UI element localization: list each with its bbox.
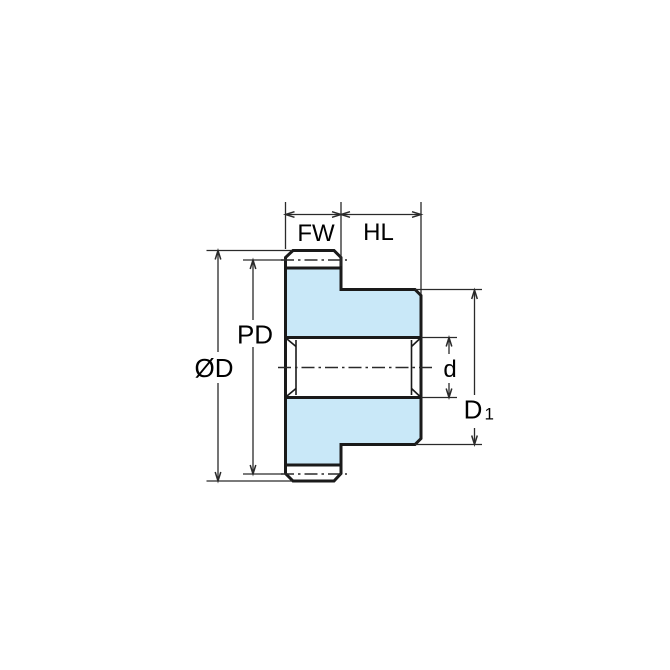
gear-tooth-top — [286, 251, 342, 269]
dimension-pd: PD — [237, 260, 283, 474]
d-label: d — [443, 356, 456, 383]
gear-body-upper — [286, 268, 422, 338]
fw-label: FW — [297, 220, 335, 247]
bore-chamfer-diag-tr — [412, 339, 420, 347]
gear-body-lower — [286, 398, 422, 466]
gear-dimension-diagram: FW HL ØD PD d D — [0, 0, 670, 670]
od-label: ØD — [195, 353, 234, 383]
pd-label: PD — [237, 320, 273, 350]
bore-chamfer-diag-bl — [287, 389, 296, 397]
bore-chamfer-diag-tl — [287, 339, 296, 347]
gear-tooth-bottom — [286, 465, 342, 481]
d1-label-subscript: 1 — [485, 405, 494, 424]
drawing-canvas: FW HL ØD PD d D — [0, 0, 670, 670]
bore-chamfer-diag-br — [412, 389, 420, 397]
d1-label-main: D — [464, 395, 483, 425]
hl-label: HL — [363, 219, 394, 246]
dimension-od: ØD — [195, 251, 293, 482]
gear-cross-section — [286, 251, 422, 482]
